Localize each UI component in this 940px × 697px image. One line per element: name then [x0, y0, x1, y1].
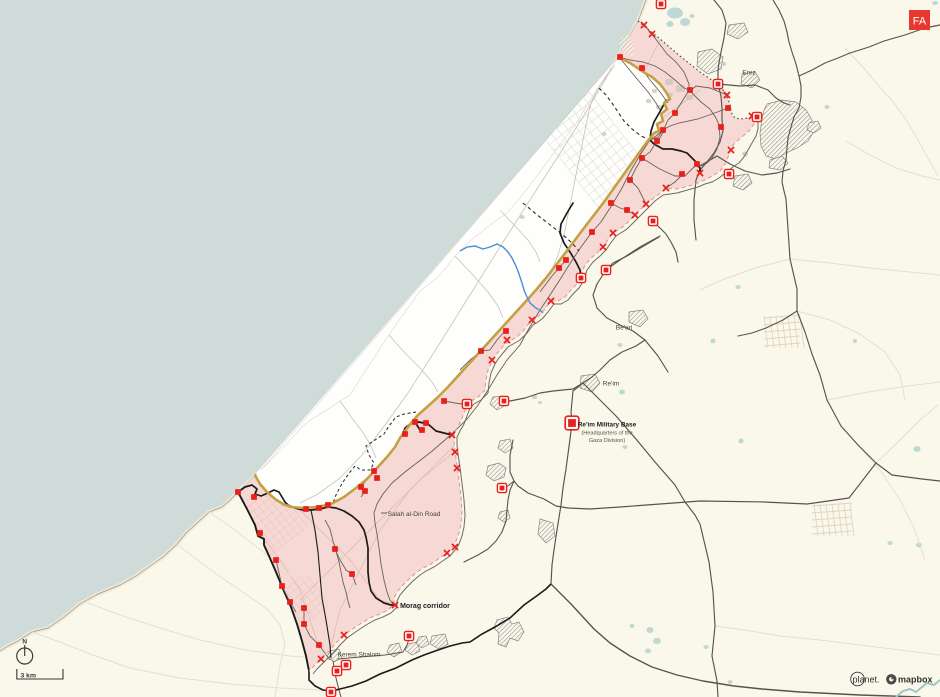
svg-text:Erez: Erez — [742, 70, 755, 77]
svg-text:Be'eri: Be'eri — [616, 325, 632, 332]
svg-text:N: N — [22, 639, 27, 646]
svg-text:Re'im Military Base: Re'im Military Base — [578, 422, 637, 429]
svg-text:3 km: 3 km — [21, 673, 37, 680]
svg-text:Kerem Shalom: Kerem Shalom — [338, 652, 381, 659]
svg-text:mapbox: mapbox — [898, 675, 933, 685]
svg-text:planet.: planet. — [853, 674, 880, 684]
svg-text:Re'im: Re'im — [603, 381, 619, 388]
svg-text:FA: FA — [913, 16, 927, 28]
svg-text:Morag corridor: Morag corridor — [400, 603, 450, 610]
svg-text:Salah al-Din Road: Salah al-Din Road — [388, 511, 441, 518]
svg-text:Gaza Division): Gaza Division) — [589, 438, 626, 444]
svg-text:(Headquarters of the: (Headquarters of the — [581, 431, 632, 437]
